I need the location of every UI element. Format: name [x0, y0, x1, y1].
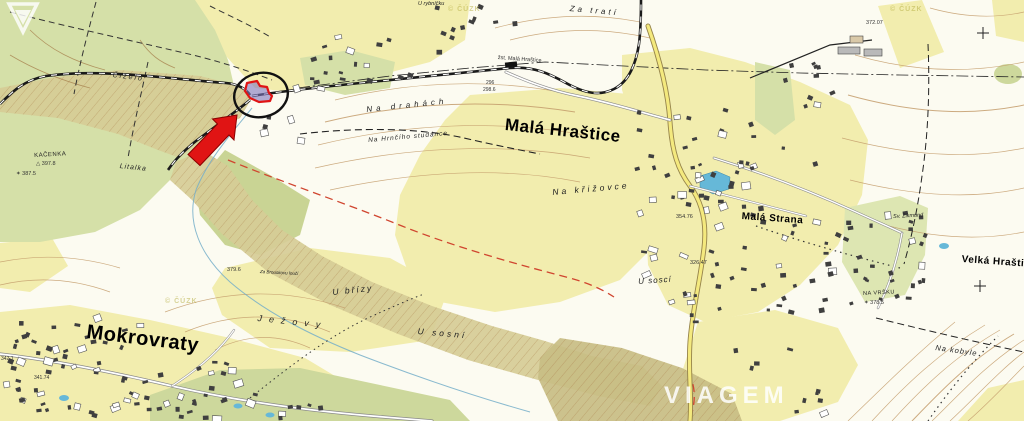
elevation-value: 397.8	[42, 161, 56, 167]
copyright-watermark: © ČÚZK	[890, 6, 923, 13]
elevation-32647: 326.47	[690, 261, 707, 267]
building-symbol	[74, 403, 81, 411]
building-symbol	[818, 398, 823, 403]
building-symbol	[34, 388, 38, 392]
building-symbol	[97, 361, 102, 366]
building-symbol	[825, 261, 831, 266]
building-symbol	[695, 172, 701, 178]
building-symbol	[212, 361, 217, 364]
building-symbol	[699, 194, 704, 198]
building-symbol	[364, 63, 369, 67]
building-symbol	[329, 56, 333, 61]
building-symbol	[3, 381, 10, 388]
building-symbol	[921, 278, 925, 283]
elevation-2986: 298.6	[483, 88, 496, 93]
elevation-372: 372.07	[866, 21, 883, 27]
building-symbol	[690, 313, 694, 317]
copyright-watermark: © ČÚZK	[165, 298, 198, 305]
building-symbol	[733, 348, 738, 353]
building-symbol	[212, 416, 222, 421]
viagem-watermark-text: VIAGEM	[664, 382, 789, 410]
elevation-3875: ✶ 387.5	[16, 172, 36, 178]
building-symbol	[279, 411, 286, 416]
building-symbol	[147, 408, 152, 412]
building-symbol	[317, 86, 325, 91]
map-canvas: Mokrovraty Malá Hraštice Velká Hraštice …	[0, 0, 1024, 421]
building-symbol	[870, 265, 875, 268]
spot-height-icon: ✶	[16, 171, 21, 177]
building-symbol	[260, 129, 269, 137]
building-symbol	[278, 416, 283, 421]
building-symbol	[460, 25, 465, 30]
building-symbol	[52, 325, 57, 329]
building-symbol	[297, 137, 305, 144]
building-symbol	[909, 238, 916, 245]
building-symbol	[718, 200, 724, 203]
map-drawing	[0, 0, 1024, 421]
building-symbol	[19, 321, 24, 326]
building-symbol	[919, 262, 925, 269]
building-symbol	[751, 288, 757, 291]
building-symbol	[741, 182, 751, 190]
building-symbol	[318, 405, 323, 410]
building-symbol	[776, 264, 782, 269]
building-symbol	[649, 197, 656, 203]
building-symbol	[228, 367, 236, 374]
building-symbol	[437, 50, 443, 55]
building-symbol	[908, 227, 913, 231]
building-symbol	[767, 309, 770, 312]
building-symbol	[690, 166, 695, 170]
building-symbol	[846, 221, 851, 225]
building-symbol	[17, 388, 21, 392]
elevation-35476: 354.76	[676, 215, 693, 221]
building-symbol	[751, 135, 756, 138]
elevation-296: 296	[486, 81, 494, 86]
building-symbol	[689, 189, 695, 193]
building-symbol	[36, 351, 40, 355]
building-symbol	[815, 392, 818, 395]
building-symbol	[715, 284, 721, 289]
building-symbol	[742, 205, 746, 209]
building-symbol	[906, 297, 912, 300]
building-symbol	[824, 252, 829, 255]
building-symbol	[674, 115, 681, 120]
building-symbol	[814, 102, 821, 108]
elevation-3796: 379.6	[227, 268, 241, 274]
building-symbol	[687, 300, 695, 305]
building-symbol	[848, 226, 854, 231]
building-symbol	[911, 283, 915, 288]
copyright-watermark: © ČÚZK	[448, 6, 481, 13]
building-symbol	[782, 146, 786, 149]
building-symbol	[885, 212, 892, 220]
locality-label-u-rybnicku: U rybníčku	[418, 2, 444, 8]
building-symbol	[650, 254, 658, 261]
building-symbol	[780, 273, 786, 278]
spot-height-icon: ✶	[864, 300, 869, 306]
building-symbol	[678, 192, 687, 199]
building-symbol	[335, 34, 342, 39]
elevation-kacenka: △ 397.8	[36, 162, 56, 168]
building-symbol	[209, 386, 215, 391]
building-symbol	[853, 268, 858, 273]
building-symbol	[179, 415, 184, 419]
building-symbol	[310, 77, 314, 80]
building-symbol	[754, 361, 760, 365]
building-symbol	[824, 242, 828, 246]
triangulation-icon: △	[36, 161, 40, 167]
building-symbol	[176, 407, 180, 412]
building-symbol	[208, 371, 214, 376]
building-symbol	[728, 185, 733, 189]
building-symbol	[704, 207, 710, 214]
building-symbol	[814, 74, 820, 78]
building-symbol	[758, 206, 764, 212]
elevation-3421: 342.1	[1, 357, 14, 362]
building-symbol	[512, 21, 517, 26]
building-symbol	[296, 405, 301, 409]
building-symbol	[739, 160, 744, 164]
building-symbol	[134, 402, 140, 406]
elevation-value: 378.5	[870, 300, 884, 306]
building-symbol	[68, 405, 72, 410]
building-symbol	[637, 110, 642, 115]
building-symbol	[36, 409, 42, 413]
building-symbol	[794, 410, 799, 414]
building-symbol	[819, 307, 825, 313]
elevation-34174: 341.74	[34, 376, 49, 381]
elevation-3785: ✶ 378.5	[864, 301, 884, 307]
building-symbol	[816, 65, 821, 70]
building-symbol	[869, 224, 872, 228]
building-symbol	[203, 416, 209, 420]
elevation-value: 387.5	[22, 171, 36, 177]
building-symbol	[693, 321, 699, 324]
building-symbol	[354, 62, 357, 67]
viagem-logo-icon	[0, 0, 46, 36]
building-symbol	[742, 246, 747, 250]
building-symbol	[323, 71, 327, 75]
building-symbol	[671, 195, 675, 199]
